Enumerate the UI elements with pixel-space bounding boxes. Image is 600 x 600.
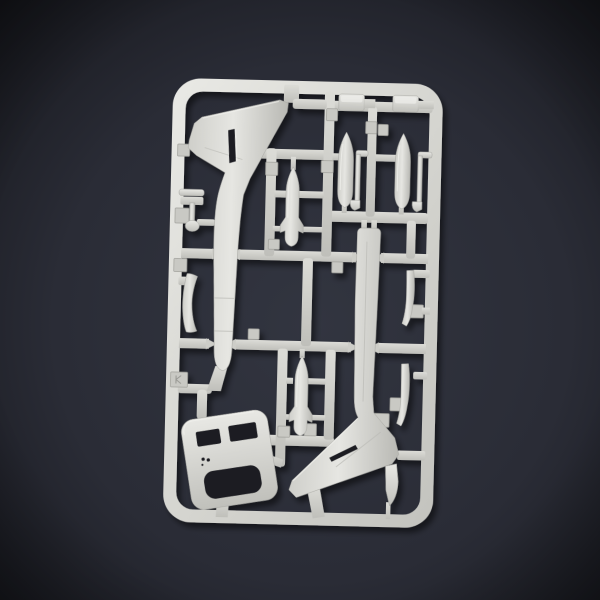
vignette-overlay (0, 0, 600, 600)
sprue-photo: Photograph of a light-grey injection-mou… (0, 0, 600, 600)
